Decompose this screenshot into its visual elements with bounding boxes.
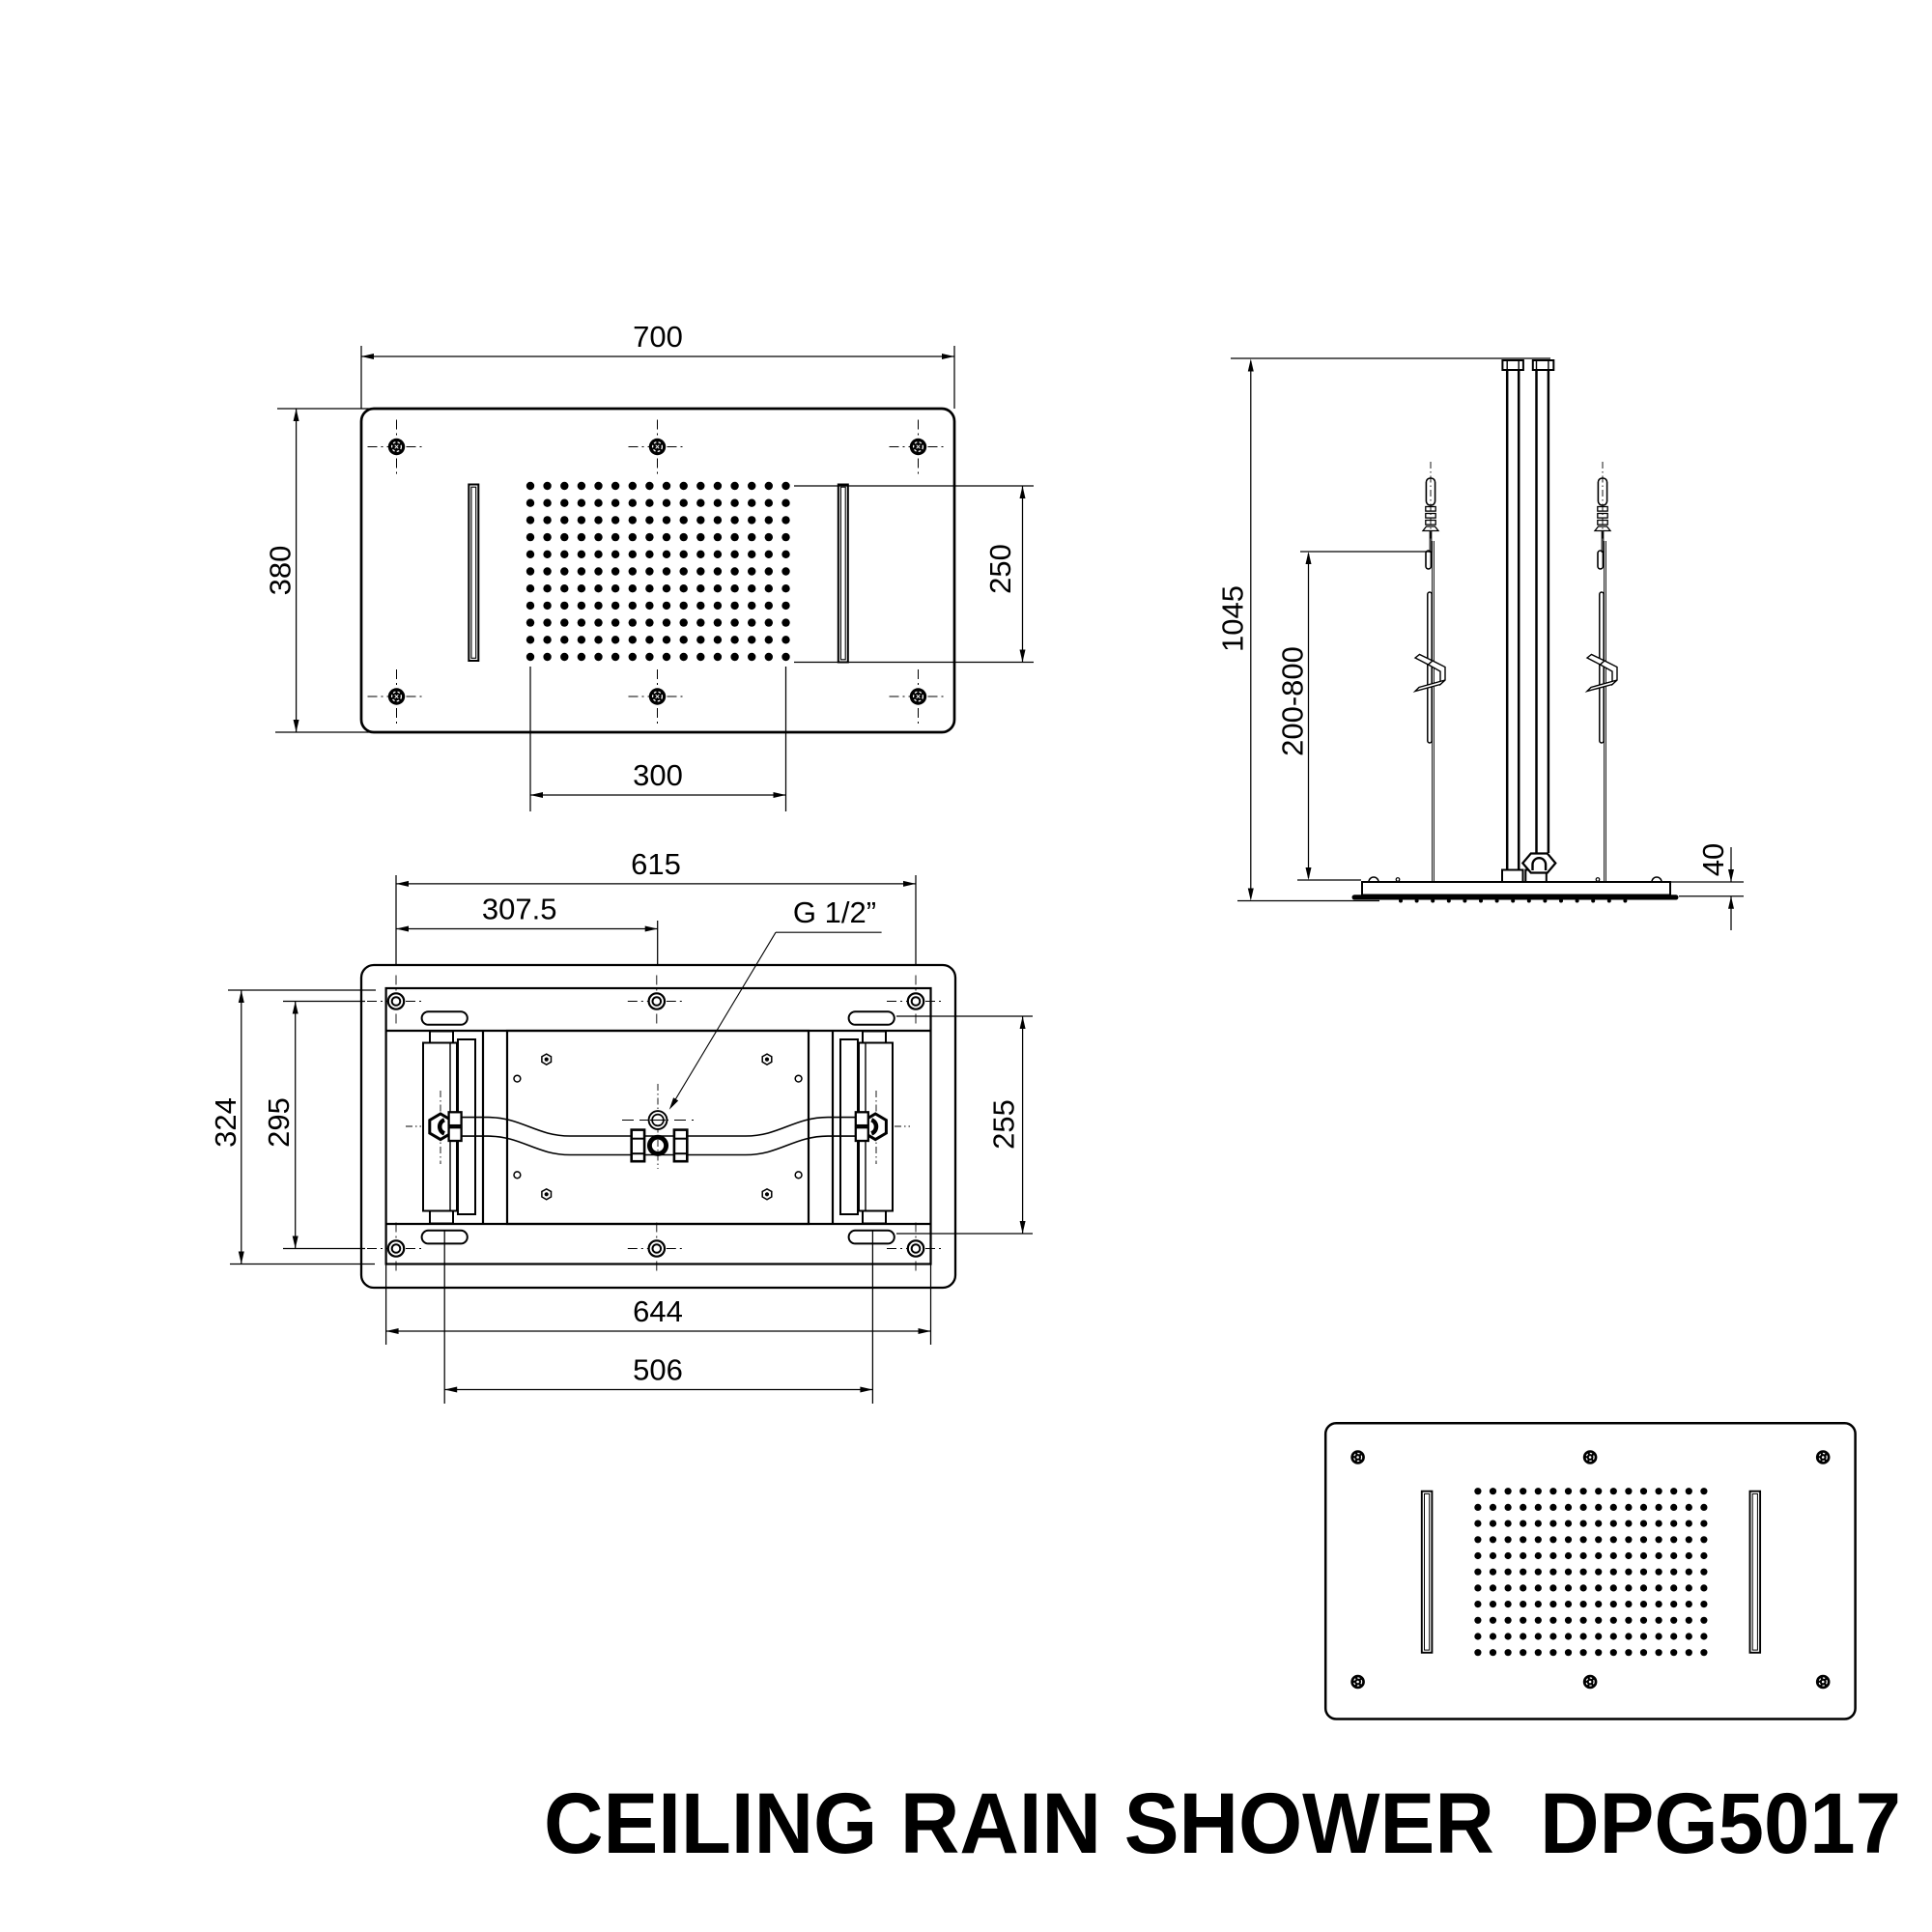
svg-text:307.5: 307.5 xyxy=(482,893,557,926)
svg-text:324: 324 xyxy=(209,1097,242,1148)
svg-text:300: 300 xyxy=(633,758,683,792)
svg-text:1045: 1045 xyxy=(1216,585,1250,652)
svg-text:644: 644 xyxy=(633,1294,683,1328)
svg-text:380: 380 xyxy=(264,546,298,596)
svg-text:40: 40 xyxy=(1696,843,1730,876)
svg-text:200-800: 200-800 xyxy=(1276,646,1310,756)
svg-text:700: 700 xyxy=(633,320,683,354)
svg-text:G 1/2”: G 1/2” xyxy=(793,895,876,929)
svg-text:506: 506 xyxy=(633,1353,683,1387)
svg-text:255: 255 xyxy=(986,1099,1020,1150)
svg-text:295: 295 xyxy=(262,1097,296,1148)
svg-text:615: 615 xyxy=(631,847,681,881)
svg-text:CEILING RAIN SHOWER DPG5017: CEILING RAIN SHOWER DPG5017 xyxy=(544,1775,1901,1871)
svg-text:250: 250 xyxy=(983,544,1017,594)
